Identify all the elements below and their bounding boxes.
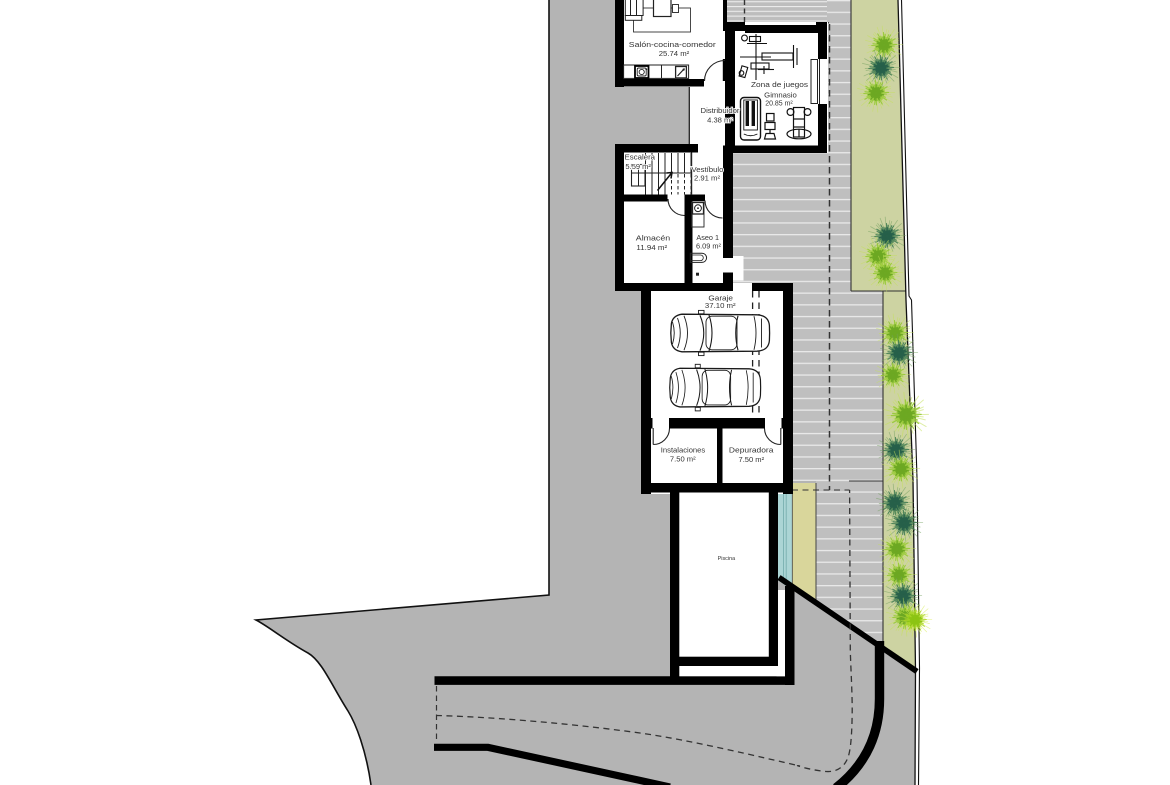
svg-text:Vestíbulo: Vestíbulo <box>692 165 724 174</box>
svg-text:Depuradora: Depuradora <box>729 446 774 455</box>
svg-text:Piscina: Piscina <box>718 556 736 562</box>
svg-text:Escalera: Escalera <box>625 153 656 162</box>
svg-text:37.10 m²: 37.10 m² <box>705 301 736 310</box>
svg-text:5.59 m²: 5.59 m² <box>625 162 651 171</box>
svg-text:7.50 m²: 7.50 m² <box>739 455 765 464</box>
svg-text:Distribuidor: Distribuidor <box>701 106 741 115</box>
svg-text:6.09 m²: 6.09 m² <box>696 241 722 250</box>
svg-text:25.74 m²: 25.74 m² <box>659 49 690 58</box>
svg-text:Almacén: Almacén <box>636 234 670 243</box>
svg-text:4.38 m²: 4.38 m² <box>707 116 733 125</box>
svg-text:Zona de juegos: Zona de juegos <box>751 80 808 89</box>
svg-text:2.91 m²: 2.91 m² <box>694 174 721 183</box>
svg-text:20.85 m²: 20.85 m² <box>765 99 793 108</box>
svg-text:Salón-cocina-comedor: Salón-cocina-comedor <box>629 40 717 49</box>
svg-text:Instalaciones: Instalaciones <box>661 445 706 454</box>
svg-text:7.50 m²: 7.50 m² <box>670 454 696 463</box>
svg-text:11.94 m²: 11.94 m² <box>636 243 667 252</box>
